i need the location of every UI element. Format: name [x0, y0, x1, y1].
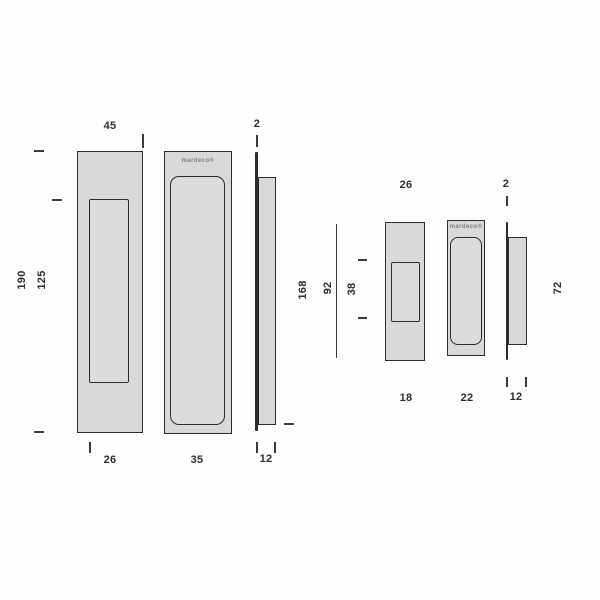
large-body-length-label: 168 [296, 270, 310, 310]
large-plate-thickness-tick [256, 135, 258, 147]
small-body-depth-tick-right [525, 377, 527, 387]
large-pull-recess-outline [89, 199, 129, 383]
large-height-bottom-tick [34, 431, 44, 433]
small-pull-side-body [508, 237, 527, 345]
small-recess-top-tick [358, 259, 367, 261]
small-faceplate-height-label: 92 [321, 268, 335, 308]
large-recess-height-label: 125 [35, 260, 49, 300]
large-recess-width-label: 26 [92, 453, 128, 467]
small-body-depth-label: 12 [498, 390, 534, 404]
small-plate-thickness-label: 2 [488, 177, 524, 191]
large-faceplate-width-label: 45 [92, 119, 128, 133]
small-pull-recess-outline [391, 262, 420, 322]
small-recess-width-label: 18 [388, 391, 424, 405]
small-plate-thickness-tick [506, 196, 508, 206]
small-body-depth-tick-left [506, 377, 508, 387]
large-body-depth-label: 12 [248, 452, 284, 466]
large-body-length-tick [284, 423, 294, 425]
dimension-drawing: 45 190 125 26 mardeco® 35 2 168 12 92 38… [0, 0, 600, 600]
small-height-dimension-line [336, 224, 337, 358]
small-recess-height-label: 38 [345, 269, 359, 309]
large-recess-width-tick [89, 442, 91, 453]
small-recess-bottom-tick [358, 317, 367, 319]
large-branded-recess-width-label: 35 [179, 453, 215, 467]
large-pull-branded-recess-outline [170, 176, 225, 425]
large-recess-top-tick [52, 199, 62, 201]
large-faceplate-height-label: 190 [15, 260, 29, 300]
small-body-length-label: 72 [551, 268, 565, 308]
mardeco-logo-small: mardeco® [449, 224, 483, 231]
small-branded-recess-width-label: 22 [449, 391, 485, 405]
large-plate-thickness-label: 2 [239, 117, 275, 131]
small-pull-branded-recess-outline [450, 237, 482, 345]
large-width-tick [142, 134, 144, 148]
mardeco-logo: mardeco® [170, 158, 226, 165]
large-height-top-tick [34, 150, 44, 152]
small-faceplate-width-label: 26 [388, 178, 424, 192]
large-pull-side-body [258, 177, 277, 425]
